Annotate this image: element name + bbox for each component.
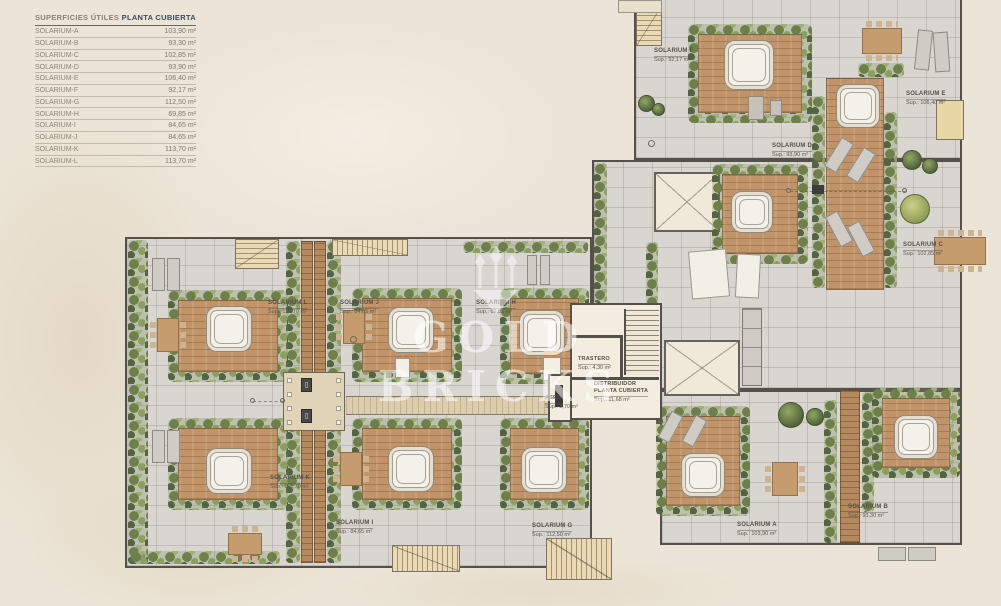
dining-table (340, 452, 362, 486)
legend-row-value: 93,90 m² (168, 64, 196, 71)
label-area: Sup.: 93,30 m² (848, 513, 888, 520)
sun-lounger (540, 255, 550, 285)
area-label: SOLARIUM KSup.: 113,70 m² (270, 466, 310, 491)
label-name: SOLARIUM B (848, 504, 888, 513)
legend-row-value: 106,40 m² (164, 75, 196, 82)
area-label: SOLARIUM FSup.: 92,17 m² (654, 39, 693, 64)
legend-row-label: SOLARIUM-J (35, 134, 77, 141)
legend-row-value: 69,85 m² (168, 111, 196, 118)
solarium-g-deck (500, 418, 589, 510)
label-name: SOLARIUM D (772, 143, 812, 152)
jacuzzi (206, 448, 252, 494)
label-name: SOLARIUM I (336, 520, 373, 529)
legend-row: SOLARIUM-J84,65 m² (35, 132, 196, 144)
stool (287, 378, 292, 383)
roof-plan-canvas: GOLD BRICKS SUPERFICIES ÚTILES PLANTA CU… (0, 0, 1001, 606)
hedge (824, 400, 837, 543)
barbecue-grill (301, 378, 312, 392)
jacuzzi (894, 415, 938, 459)
hedge (884, 112, 897, 288)
stairs (392, 545, 460, 572)
legend-row-label: SOLARIUM-E (35, 75, 79, 82)
dimension-marker (786, 188, 791, 193)
skylight (654, 172, 720, 232)
legend-row-label: SOLARIUM-C (35, 52, 79, 59)
legend-row-label: SOLARIUM-K (35, 146, 79, 153)
door-tag (812, 185, 824, 194)
sun-lounger (167, 258, 180, 291)
solarium-b-deck (872, 388, 960, 478)
dimension-line (253, 401, 283, 402)
area-label: SOLARIUM BSup.: 93,30 m² (848, 495, 888, 520)
label-name: SOLARIUM E (906, 91, 946, 100)
legend-table: SUPERFICIES ÚTILES PLANTA CUBIERTA SOLAR… (35, 13, 196, 167)
legend-row-value: 102,85 m² (164, 52, 196, 59)
legend-row-value: 112,50 m² (165, 99, 196, 106)
dining-table (862, 28, 902, 54)
jacuzzi (836, 84, 880, 128)
legend-row-label: SOLARIUM-B (35, 40, 79, 47)
label-name: SOLARIUM G (532, 523, 572, 532)
label-name: SOLARIUM F (654, 48, 693, 57)
legend-row-value: 113,70 m² (165, 146, 196, 153)
legend-row: SOLARIUM-C102,85 m² (35, 50, 196, 62)
label-area: Sup.: 112,50 m² (532, 532, 572, 539)
legend-row-label: SOLARIUM-H (35, 111, 79, 118)
stool (336, 420, 341, 425)
barbecue-grill (301, 409, 312, 423)
sun-lounger (878, 547, 906, 561)
legend-rows: SOLARIUM-A103,90 m²SOLARIUM-B93,30 m²SOL… (35, 26, 196, 167)
central-deck (712, 164, 808, 264)
legend-row-value: 92,17 m² (168, 87, 196, 94)
gold-bricks-logo (470, 246, 522, 314)
jacuzzi (724, 40, 774, 90)
label-area: Sup.: 113,70 m² (270, 484, 310, 491)
tree (806, 408, 824, 426)
terrain-patch (140, 20, 570, 250)
stool (287, 420, 292, 425)
sun-lounger (152, 430, 165, 463)
sun-lounger (933, 32, 951, 73)
legend-row: SOLARIUM-D93,90 m² (35, 61, 196, 73)
dimension-marker (902, 188, 907, 193)
hedge (128, 240, 148, 564)
label-name: SOLARIUM K (270, 475, 310, 484)
light-pole (648, 140, 655, 147)
area-label: SOLARIUM CSup.: 102,85 m² (903, 233, 943, 258)
sun-lounger (167, 430, 180, 463)
dining-table (228, 533, 262, 555)
stairs (235, 239, 279, 269)
area-label: SOLARIUM ESup.: 106,40 m² (906, 82, 946, 107)
legend-row-value: 84,65 m² (168, 122, 196, 129)
legend-row-label: SOLARIUM-F (35, 87, 78, 94)
dining-table (157, 318, 179, 352)
jacuzzi (388, 446, 434, 492)
label-name: SOLARIUM L (268, 300, 307, 309)
label-area: Sup.: 103,90 m² (737, 531, 777, 538)
game-table (688, 248, 730, 299)
legend-row: SOLARIUM-G112,50 m² (35, 97, 196, 109)
equipment-unit (770, 100, 782, 116)
dining-table (772, 462, 798, 496)
area-label: SOLARIUM ASup.: 103,90 m² (737, 513, 777, 538)
label-area: Sup.: 113,70 m² (268, 309, 307, 316)
sun-lounger (152, 258, 165, 291)
legend-row: SOLARIUM-L113,70 m² (35, 156, 196, 168)
label-area: Sup.: 92,17 m² (654, 57, 693, 64)
legend-header: SUPERFICIES ÚTILES PLANTA CUBIERTA (35, 13, 196, 26)
stairs (332, 239, 408, 256)
legend-row-label: SOLARIUM-L (35, 158, 78, 165)
tree (652, 103, 665, 116)
sun-lounger (908, 547, 936, 561)
game-table (735, 253, 761, 298)
dimension-line (790, 191, 906, 192)
label-name: SOLARIUM C (903, 242, 943, 251)
equipment-unit (748, 96, 764, 120)
legend-row: SOLARIUM-H69,85 m² (35, 108, 196, 120)
legend-row: SOLARIUM-E106,40 m² (35, 73, 196, 85)
skylight (664, 340, 740, 396)
label-area: Sup.: 106,40 m² (906, 100, 946, 107)
label-name: SOLARIUM J (340, 300, 379, 309)
area-label: SOLARIUM GSup.: 112,50 m² (532, 514, 572, 539)
area-label: SOLARIUM LSup.: 113,70 m² (268, 291, 307, 316)
jacuzzi (681, 453, 725, 497)
watermark-text: GOLD BRICKS (335, 313, 665, 411)
legend-row: SOLARIUM-F92,17 m² (35, 85, 196, 97)
sun-lounger (527, 255, 537, 285)
label-area: Sup.: 102,85 m² (903, 251, 943, 258)
dimension-marker (280, 398, 285, 403)
legend-row-value: 103,90 m² (164, 28, 196, 35)
tree (902, 150, 922, 170)
legend-row-value: 84,65 m² (168, 134, 196, 141)
stool (287, 406, 292, 411)
area-label: SOLARIUM ISup.: 84,65 m² (336, 511, 373, 536)
solarium-k-deck (168, 418, 288, 510)
jacuzzi (731, 191, 773, 233)
legend-row-label: SOLARIUM-I (35, 122, 76, 129)
tree (922, 158, 938, 174)
dimension-marker (250, 398, 255, 403)
legend-row: SOLARIUM-K113,70 m² (35, 144, 196, 156)
legend-row: SOLARIUM-A103,90 m² (35, 26, 196, 38)
legend-row: SOLARIUM-B93,30 m² (35, 38, 196, 50)
stairs (546, 538, 612, 580)
tree (778, 402, 804, 428)
tree (900, 194, 930, 224)
legend-row-label: SOLARIUM-G (35, 99, 79, 106)
label-area: Sup.: 93,90 m² (772, 152, 812, 159)
hedge (594, 163, 607, 303)
legend-row: SOLARIUM-I84,65 m² (35, 120, 196, 132)
jacuzzi (521, 447, 567, 493)
area-label: SOLARIUM DSup.: 93,90 m² (772, 134, 812, 159)
label-name: SOLARIUM A (737, 522, 777, 531)
legend-row-label: SOLARIUM-A (35, 28, 79, 35)
outdoor-kitchen (742, 308, 762, 386)
stool (287, 392, 292, 397)
legend-row-value: 93,30 m² (168, 40, 196, 47)
label-area: Sup.: 84,65 m² (336, 529, 373, 536)
stair-landing (618, 0, 662, 13)
legend-row-value: 113,70 m² (165, 158, 196, 165)
jacuzzi (206, 306, 252, 352)
legend-plan-name: PLANTA CUBIERTA (122, 13, 196, 22)
legend-title: SUPERFICIES ÚTILES (35, 13, 119, 22)
legend-row-label: SOLARIUM-D (35, 64, 79, 71)
hedge (858, 63, 904, 77)
